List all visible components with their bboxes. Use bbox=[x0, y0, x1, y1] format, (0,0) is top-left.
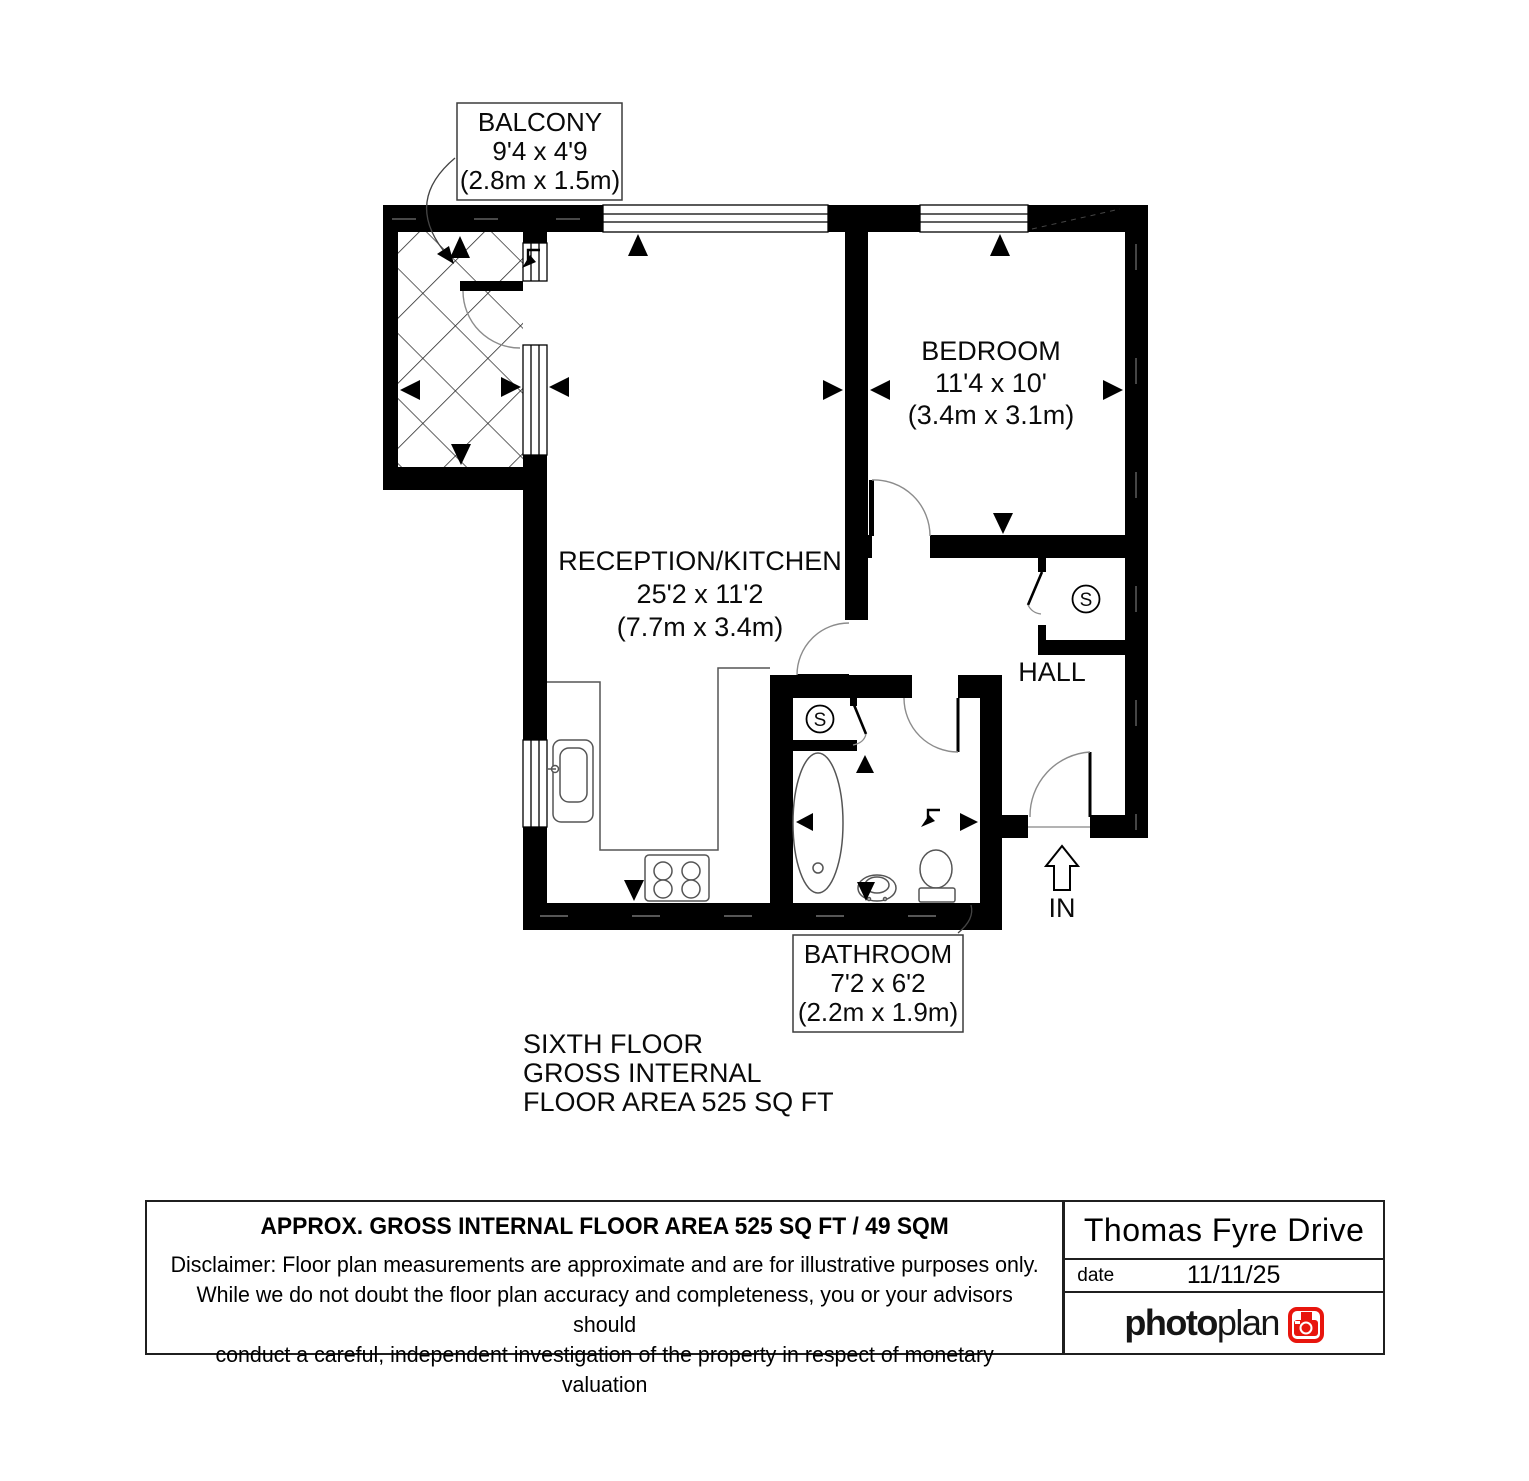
arrow-right-icon bbox=[1103, 380, 1123, 400]
camera-position-icon bbox=[921, 810, 940, 827]
svg-text:9'4 x 4'9: 9'4 x 4'9 bbox=[492, 136, 587, 166]
disclaimer-line: conduct a careful, independent investiga… bbox=[170, 1340, 1039, 1400]
svg-text:BATHROOM: BATHROOM bbox=[804, 939, 952, 969]
reception-door bbox=[797, 623, 849, 675]
bedroom-door bbox=[869, 480, 930, 536]
footer-info-box: Thomas Fyre Drive date 11/11/25 photopla… bbox=[1064, 1200, 1385, 1355]
storage-cupboard-hall: S bbox=[1073, 586, 1100, 613]
arrow-down-icon bbox=[624, 880, 644, 901]
bedroom-window bbox=[920, 205, 1028, 232]
storage-symbol: S bbox=[1080, 590, 1093, 611]
storage-symbol: S bbox=[814, 710, 827, 731]
storage-cupboard-bathroom: S bbox=[807, 706, 834, 733]
date-label: date bbox=[1077, 1265, 1114, 1287]
hall-label: HALL bbox=[1018, 657, 1086, 687]
entrance-arrow-icon bbox=[1046, 846, 1078, 890]
svg-text:(2.2m x 1.9m): (2.2m x 1.9m) bbox=[798, 997, 958, 1027]
brand-wordmark: photoplan bbox=[1124, 1302, 1279, 1344]
svg-text:GROSS INTERNAL: GROSS INTERNAL bbox=[523, 1058, 762, 1088]
svg-text:7'2 x 6'2: 7'2 x 6'2 bbox=[830, 968, 925, 998]
floor-plan-page: IN S S RECEPTION/KITCHEN 25'2 x 11'2 (7.… bbox=[0, 0, 1529, 1481]
svg-text:11'4 x 10': 11'4 x 10' bbox=[935, 368, 1047, 398]
arrow-left-icon bbox=[549, 377, 569, 397]
svg-text:RECEPTION/KITCHEN: RECEPTION/KITCHEN bbox=[558, 546, 842, 576]
arrow-left-icon bbox=[870, 380, 890, 400]
arrow-up-icon bbox=[628, 234, 648, 256]
kitchen-sink bbox=[548, 740, 593, 822]
kitchen-fixtures bbox=[547, 668, 770, 901]
svg-text:BALCONY: BALCONY bbox=[478, 107, 602, 137]
hob bbox=[645, 855, 709, 901]
brand-logo: photoplan bbox=[1065, 1293, 1383, 1353]
floor-plan-drawing: IN S S RECEPTION/KITCHEN 25'2 x 11'2 (7.… bbox=[0, 0, 1529, 1160]
property-address: Thomas Fyre Drive bbox=[1065, 1202, 1383, 1260]
balcony-side-window-lower bbox=[523, 345, 547, 455]
bathroom-fixtures bbox=[793, 753, 955, 902]
arrow-right-icon bbox=[960, 813, 978, 831]
kitchen-side-window bbox=[523, 740, 547, 827]
svg-text:(2.8m x 1.5m): (2.8m x 1.5m) bbox=[460, 165, 620, 195]
reception-label: RECEPTION/KITCHEN 25'2 x 11'2 (7.7m x 3.… bbox=[558, 546, 842, 642]
bathroom-door bbox=[904, 698, 958, 752]
toilet bbox=[919, 850, 955, 902]
svg-text:BEDROOM: BEDROOM bbox=[921, 336, 1061, 366]
camera-icon bbox=[1288, 1306, 1324, 1343]
svg-text:(7.7m x 3.4m): (7.7m x 3.4m) bbox=[617, 612, 784, 642]
balcony-hatch bbox=[398, 232, 523, 467]
disclaimer-line: Disclaimer: Floor plan measurements are … bbox=[170, 1250, 1039, 1280]
svg-text:FLOOR AREA 525 SQ FT: FLOOR AREA 525 SQ FT bbox=[523, 1087, 834, 1117]
entrance-label: IN bbox=[1049, 893, 1076, 923]
arrow-up-icon bbox=[856, 755, 874, 773]
date-value: 11/11/25 bbox=[1114, 1261, 1353, 1290]
svg-text:SIXTH FLOOR: SIXTH FLOOR bbox=[523, 1029, 703, 1059]
arrow-up-icon bbox=[990, 234, 1010, 256]
arrow-right-icon bbox=[823, 380, 843, 400]
hall-cupboard-door bbox=[1028, 572, 1042, 614]
date-row: date 11/11/25 bbox=[1065, 1260, 1383, 1293]
svg-text:25'2 x 11'2: 25'2 x 11'2 bbox=[637, 579, 764, 609]
entrance-door bbox=[1028, 752, 1090, 827]
disclaimer-line: While we do not doubt the floor plan acc… bbox=[170, 1280, 1039, 1340]
svg-text:(3.4m x 3.1m): (3.4m x 3.1m) bbox=[908, 400, 1075, 430]
footer: APPROX. GROSS INTERNAL FLOOR AREA 525 SQ… bbox=[145, 1200, 1385, 1355]
arrow-down-icon bbox=[993, 513, 1013, 534]
area-heading: APPROX. GROSS INTERNAL FLOOR AREA 525 SQ… bbox=[260, 1213, 948, 1241]
floor-summary: SIXTH FLOOR GROSS INTERNAL FLOOR AREA 52… bbox=[523, 1029, 834, 1117]
bedroom-label: BEDROOM 11'4 x 10' (3.4m x 3.1m) bbox=[908, 336, 1075, 430]
footer-disclaimer-box: APPROX. GROSS INTERNAL FLOOR AREA 525 SQ… bbox=[145, 1200, 1064, 1355]
reception-window bbox=[603, 205, 828, 232]
bathroom-cupboard-door bbox=[852, 700, 866, 745]
